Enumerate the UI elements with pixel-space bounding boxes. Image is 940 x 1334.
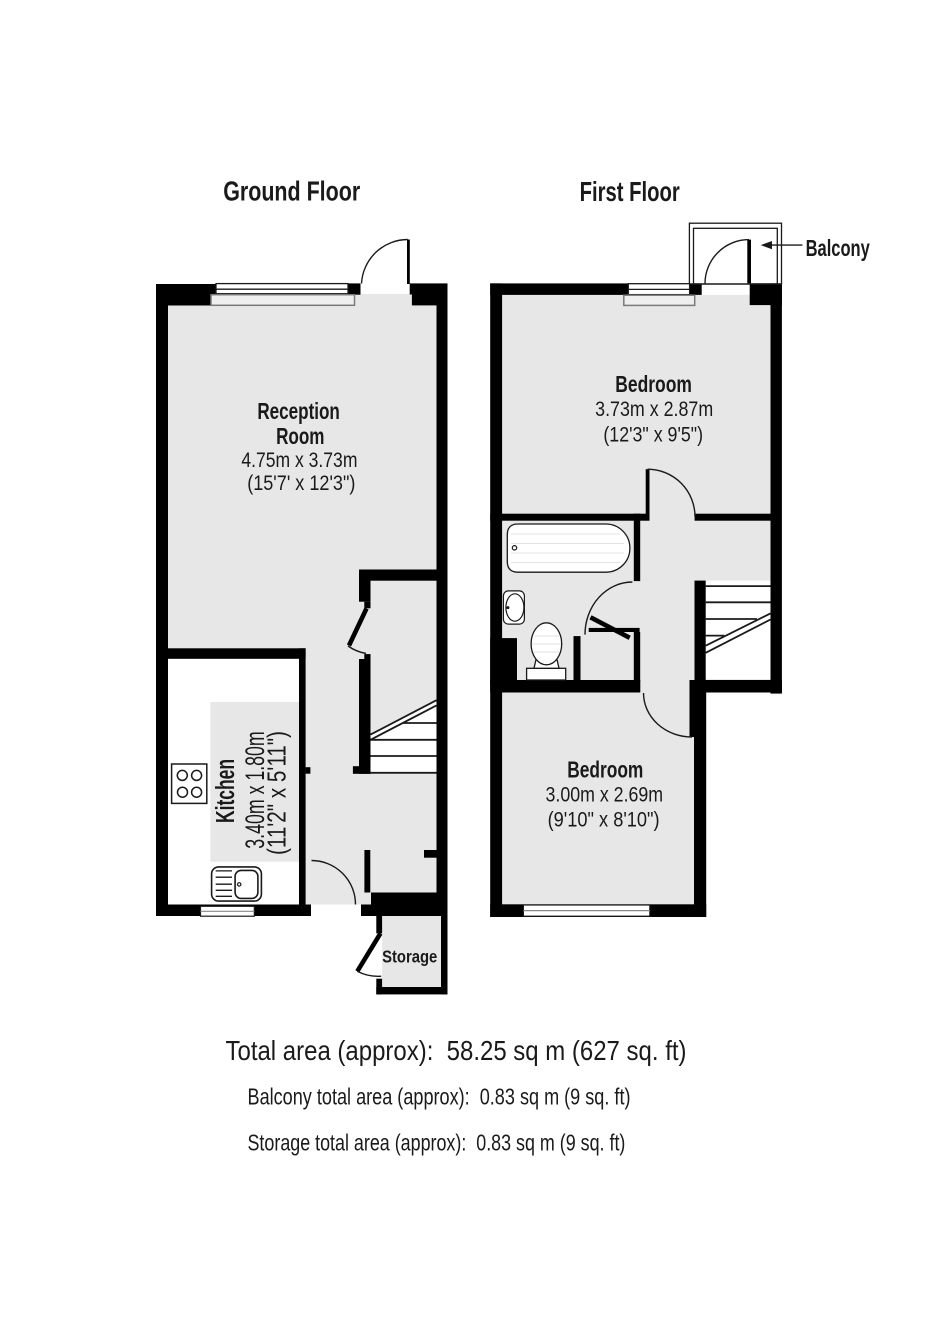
svg-text:Total area (approx): 58.25 sq: Total area (approx): 58.25 sq m (627 sq.… xyxy=(226,1035,687,1066)
svg-text:Bedroom: Bedroom xyxy=(567,756,643,782)
svg-text:Kitchen: Kitchen xyxy=(212,759,240,823)
svg-text:Bedroom: Bedroom xyxy=(615,371,692,397)
svg-text:Balcony: Balcony xyxy=(806,235,870,261)
svg-text:4.75m x 3.73m: 4.75m x 3.73m xyxy=(241,449,357,472)
svg-text:Storage: Storage xyxy=(382,947,437,967)
svg-text:(9'10" x 8'10"): (9'10" x 8'10") xyxy=(548,808,660,831)
svg-text:Room: Room xyxy=(276,423,324,449)
svg-text:(12'3" x 9'5"): (12'3" x 9'5") xyxy=(603,424,703,447)
svg-text:Ground Floor: Ground Floor xyxy=(223,176,360,207)
svg-text:First Floor: First Floor xyxy=(580,176,680,207)
svg-text:3.00m x 2.69m: 3.00m x 2.69m xyxy=(546,783,664,806)
svg-text:3.73m x 2.87m: 3.73m x 2.87m xyxy=(595,398,713,421)
svg-text:Balcony total area (approx):: Balcony total area (approx): 0.83 sq m (… xyxy=(248,1084,631,1110)
svg-text:Storage total area (approx):: Storage total area (approx): 0.83 sq m (… xyxy=(248,1130,626,1156)
svg-text:Reception: Reception xyxy=(257,398,340,424)
svg-text:(15'7' x 12'3"): (15'7' x 12'3") xyxy=(247,472,355,495)
svg-text:(11'2" x 5'11"): (11'2" x 5'11") xyxy=(261,731,291,855)
